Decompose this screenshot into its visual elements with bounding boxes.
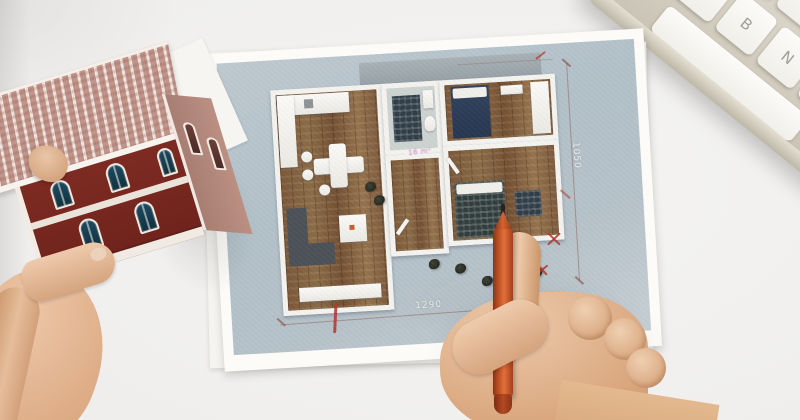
kitchen-counter xyxy=(277,92,350,116)
house-window xyxy=(103,161,130,194)
chair xyxy=(301,151,313,163)
knuckle xyxy=(626,348,666,388)
terrace-top xyxy=(359,52,542,89)
dimension-line-right xyxy=(566,63,580,281)
coffee-table xyxy=(339,214,368,243)
bench xyxy=(500,85,522,95)
house-window xyxy=(182,122,204,156)
table-decor xyxy=(349,225,354,230)
house-window xyxy=(48,178,75,211)
pen-cap xyxy=(494,394,512,414)
sofa xyxy=(286,208,309,267)
dimension-line-top xyxy=(457,59,553,66)
pencil-mark xyxy=(333,303,337,333)
plant xyxy=(374,195,386,206)
kitchen-counter-side xyxy=(277,95,298,168)
bed-pillows xyxy=(456,182,503,195)
rug xyxy=(515,190,542,217)
sink xyxy=(422,90,433,109)
house-window xyxy=(132,199,160,234)
sofa-chaise xyxy=(288,242,335,267)
dimension-tick xyxy=(562,58,571,66)
door xyxy=(446,157,460,174)
house-window xyxy=(155,146,178,177)
plant xyxy=(365,181,377,192)
plant xyxy=(455,263,467,274)
toilet xyxy=(424,116,436,132)
stove xyxy=(304,99,314,109)
bath-mat xyxy=(392,95,423,143)
house-window xyxy=(205,137,227,171)
chair xyxy=(319,184,331,196)
thumb-nail xyxy=(89,246,108,263)
desk-scene: ERTYUIOFGHJKLVBNM xyxy=(0,0,800,420)
room-bedroom-top xyxy=(439,74,559,147)
pen-cone xyxy=(494,211,512,231)
pencil-mark xyxy=(535,51,546,60)
bed-top xyxy=(450,85,491,139)
room-bathroom xyxy=(381,80,443,155)
dining-table xyxy=(313,156,364,175)
pencil-mark xyxy=(547,232,561,245)
pencil-mark xyxy=(560,189,571,199)
chair xyxy=(302,169,314,181)
tv-cabinet xyxy=(299,283,382,302)
dimension-tick xyxy=(277,318,286,326)
dining-table-cross xyxy=(329,143,349,188)
dimension-tick xyxy=(575,276,584,284)
room-living xyxy=(270,84,394,316)
dimension-label-right: 1050 xyxy=(570,142,582,169)
wardrobe xyxy=(530,81,551,134)
room-hall xyxy=(385,152,449,256)
plant xyxy=(429,259,441,270)
area-label: 16 m² xyxy=(408,146,432,157)
bed-pillows xyxy=(452,87,487,99)
door xyxy=(396,218,410,235)
pencil-mark xyxy=(547,232,561,245)
